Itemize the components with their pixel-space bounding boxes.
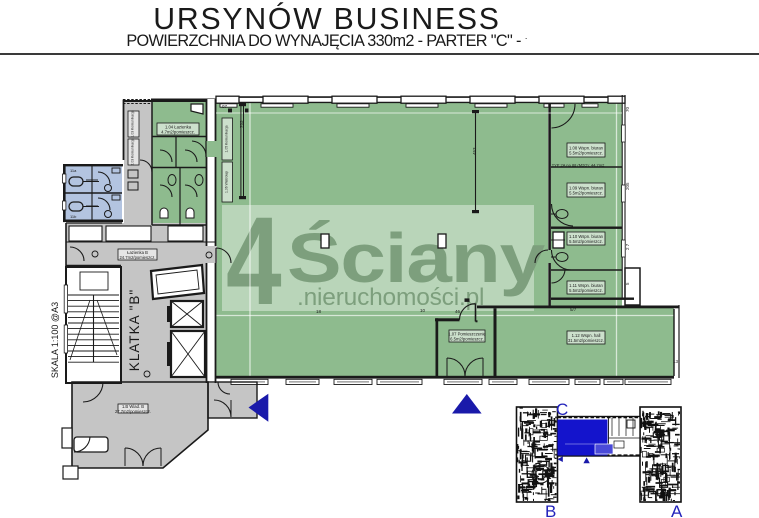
- svg-text:6.5m2/pomieszcz.: 6.5m2/pomieszcz.: [450, 337, 484, 342]
- svg-text:4.7m2/pomieszcz.: 4.7m2/pomieszcz.: [161, 130, 195, 135]
- svg-text:453: 453: [472, 147, 477, 155]
- svg-text:07: 07: [222, 104, 228, 109]
- svg-text:.nieruchomości.pl: .nieruchomości.pl: [297, 284, 484, 311]
- svg-text:2.03 Komunikacja: 2.03 Komunikacja: [131, 138, 135, 165]
- svg-text:1.05 Komunikacja: 1.05 Komunikacja: [224, 125, 228, 152]
- svg-text:5.5m2/pomieszcz.: 5.5m2/pomieszcz.: [569, 288, 603, 293]
- svg-text:205: 205: [625, 182, 630, 190]
- svg-text:5.5m2/pomieszcz.: 5.5m2/pomieszcz.: [569, 239, 603, 244]
- svg-text:5.5m2/pomieszcz.: 5.5m2/pomieszcz.: [569, 191, 603, 196]
- svg-text:11a: 11a: [70, 168, 77, 173]
- svg-text:24.7m2/pomieszcz.: 24.7m2/pomieszcz.: [119, 255, 155, 260]
- svg-text:KLATKA "B": KLATKA "B": [127, 289, 142, 371]
- svg-text:70: 70: [625, 106, 630, 112]
- svg-text:31.5m2/pomieszcz.: 31.5m2/pomieszcz.: [568, 338, 604, 343]
- svg-text:1.03 Komunikacja: 1.03 Komunikacja: [131, 110, 135, 137]
- svg-text:5/7: 5/7: [570, 307, 577, 312]
- svg-text:18: 18: [316, 309, 322, 314]
- svg-text:2 7: 2 7: [625, 243, 630, 250]
- svg-text:1.06 Wiatrołap: 1.06 Wiatrołap: [224, 171, 228, 193]
- svg-text:10: 10: [420, 308, 426, 313]
- svg-text:13: 13: [673, 359, 679, 364]
- svg-text:5.5m2/pomieszcz.: 5.5m2/pomieszcz.: [569, 151, 603, 156]
- svg-text:4: 4: [226, 191, 282, 330]
- svg-text:SKALA 1:100 @A3: SKALA 1:100 @A3: [50, 302, 60, 378]
- svg-text:11b: 11b: [70, 214, 77, 219]
- svg-text:753: 753: [239, 120, 244, 128]
- svg-text:46: 46: [455, 309, 461, 314]
- svg-text:TYP 2A na 88 (M2O): 44,7m2: TYP 2A na 88 (M2O): 44,7m2: [552, 163, 605, 168]
- svg-text:27.7m2/pomieszcz.: 27.7m2/pomieszcz.: [115, 409, 151, 414]
